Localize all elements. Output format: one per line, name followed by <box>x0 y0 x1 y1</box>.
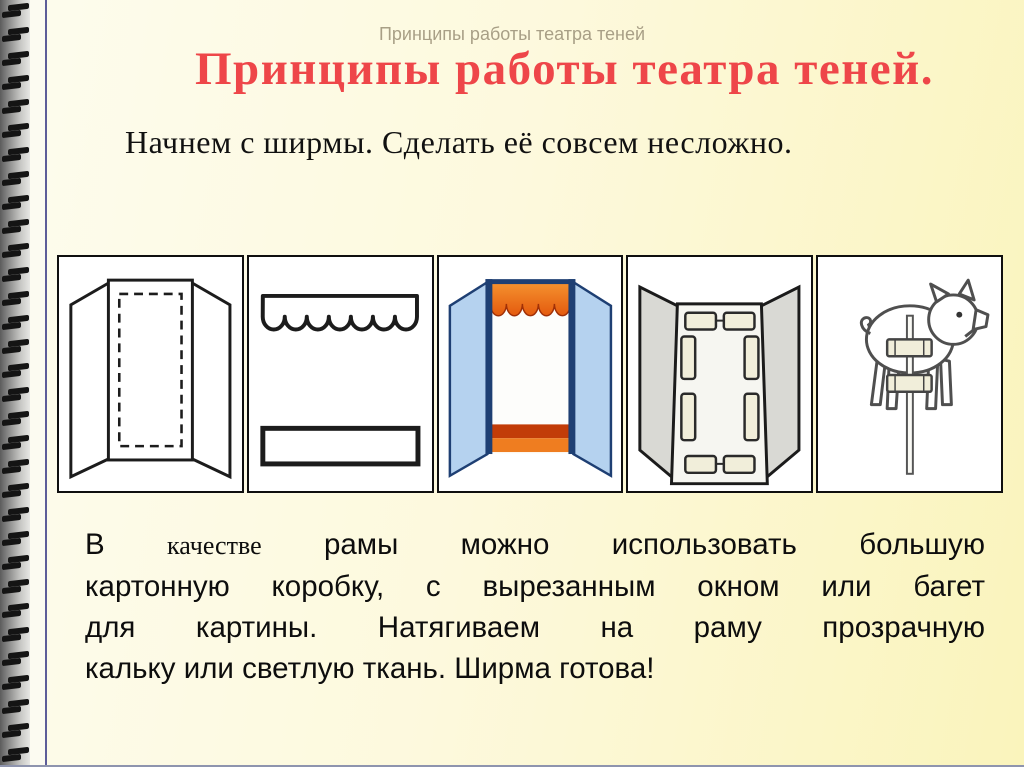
body-line-2: картонную коробку, с вырезанным окном ил… <box>85 566 985 607</box>
pig-puppet-drawing <box>818 257 1001 491</box>
spiral-coil <box>2 244 30 258</box>
spiral-coil <box>2 508 30 522</box>
spiral-coil <box>2 76 30 90</box>
spiral-coil <box>2 316 30 330</box>
folding-screen-cutout-figure <box>57 255 244 493</box>
spiral-coil <box>2 460 30 474</box>
spiral-coil <box>2 724 30 738</box>
body-line-4: кальку или светлую ткань. Ширма готова! <box>85 648 985 689</box>
spiral-coil <box>2 628 30 642</box>
body-lead-word: В <box>85 528 105 561</box>
assembled-screen-drawing <box>439 257 622 491</box>
spiral-coil <box>2 580 30 594</box>
spiral-coil <box>2 220 30 234</box>
spiral-coil <box>2 292 30 306</box>
spiral-coil <box>2 52 30 66</box>
spiral-coil <box>2 604 30 618</box>
spiral-coil <box>2 172 30 186</box>
spiral-coil <box>2 412 30 426</box>
spiral-coil <box>2 676 30 690</box>
spiral-coil <box>2 652 30 666</box>
slide-title: Принципы работы театра теней. <box>112 42 1017 96</box>
spiral-coil <box>2 340 30 354</box>
spiral-coil <box>2 268 30 282</box>
presentation-slide: Принципы работы театра теней Принципы ра… <box>0 0 1024 767</box>
body-paragraph: В качестве рамы можно использовать больш… <box>85 524 985 689</box>
pig-puppet-on-stick-figure <box>816 255 1003 493</box>
spiral-coil <box>2 4 30 18</box>
spiral-coil <box>2 484 30 498</box>
spiral-coil <box>2 100 30 114</box>
body-line-1-rest: рамы можно использовать большую <box>324 528 985 561</box>
valance-and-plank-drawing <box>249 257 432 491</box>
valance-and-plank-figure <box>247 255 434 493</box>
spiral-binding <box>0 0 34 767</box>
spiral-coil <box>2 124 30 138</box>
figure-strip <box>57 255 1003 493</box>
spiral-coil <box>2 532 30 546</box>
spiral-coil <box>2 196 30 210</box>
spiral-coil <box>2 388 30 402</box>
spiral-coil <box>2 148 30 162</box>
spiral-coil <box>2 436 30 450</box>
screen-back-taped-figure <box>626 255 813 493</box>
body-line-1: В качестве рамы можно использовать больш… <box>85 524 985 566</box>
slide-subtitle: Начнем с ширмы. Сделать её совсем неслож… <box>125 124 985 161</box>
body-line-3: для картины. Натягиваем на раму прозрачн… <box>85 607 985 648</box>
folding-screen-cutout-drawing <box>59 257 242 491</box>
spiral-coil <box>2 748 30 762</box>
spiral-coil <box>2 556 30 570</box>
body-serif-word: качестве <box>167 531 262 560</box>
spiral-coil <box>2 364 30 378</box>
assembled-screen-figure <box>437 255 624 493</box>
spiral-coil <box>2 700 30 714</box>
screen-back-taped-drawing <box>628 257 811 491</box>
